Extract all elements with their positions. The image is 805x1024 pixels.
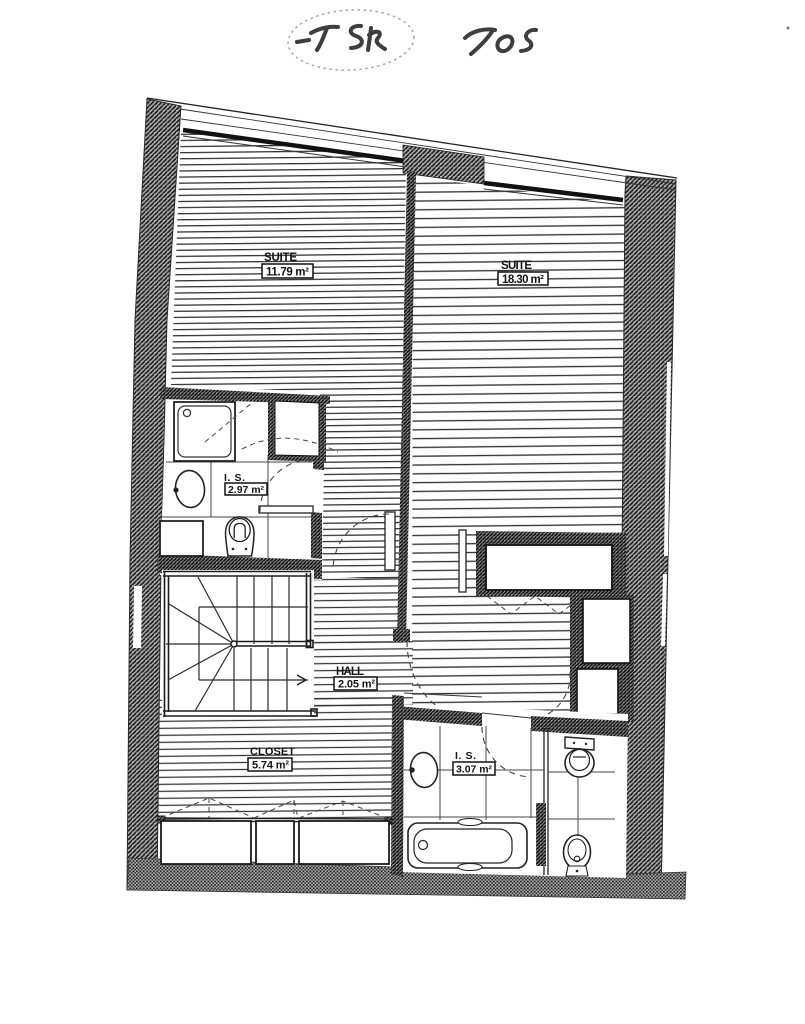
svg-text:2.97 m²: 2.97 m² xyxy=(228,484,265,496)
svg-text:HALL: HALL xyxy=(336,666,364,678)
svg-text:I. S.: I. S. xyxy=(455,750,476,762)
svg-text:2.05 m²: 2.05 m² xyxy=(338,679,375,691)
svg-text:CLOSET: CLOSET xyxy=(250,746,295,758)
svg-text:18.30 m²: 18.30 m² xyxy=(502,274,544,286)
svg-text:11.79 m²: 11.79 m² xyxy=(266,267,309,279)
svg-text:3.07 m²: 3.07 m² xyxy=(456,764,493,776)
svg-text:I. S.: I. S. xyxy=(224,472,245,484)
svg-text:SUITE: SUITE xyxy=(501,260,532,272)
svg-text:5.74 m²: 5.74 m² xyxy=(252,760,289,772)
svg-text:SUITE: SUITE xyxy=(264,252,297,264)
